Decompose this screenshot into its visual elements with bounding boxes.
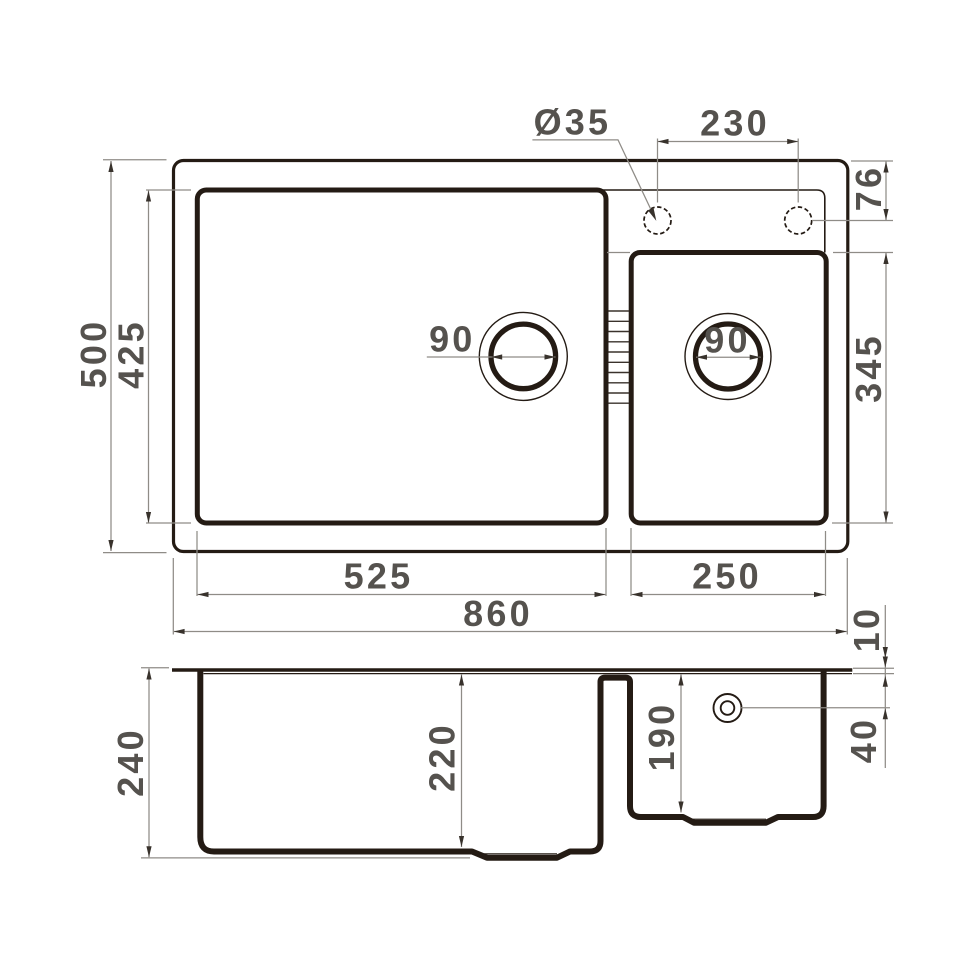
svg-text:90: 90 [704,320,750,361]
svg-text:220: 220 [422,722,463,792]
svg-text:500: 500 [73,319,114,389]
svg-text:240: 240 [110,727,151,797]
svg-text:Ø35: Ø35 [534,101,612,142]
svg-text:230: 230 [700,103,770,144]
svg-text:250: 250 [692,556,762,597]
svg-text:425: 425 [111,319,152,389]
svg-text:76: 76 [848,165,889,211]
svg-text:10: 10 [846,606,887,652]
svg-text:345: 345 [848,333,889,403]
svg-text:40: 40 [843,717,884,763]
svg-text:525: 525 [344,556,414,597]
svg-text:190: 190 [641,702,682,772]
svg-text:90: 90 [429,319,475,360]
svg-text:860: 860 [463,593,533,634]
